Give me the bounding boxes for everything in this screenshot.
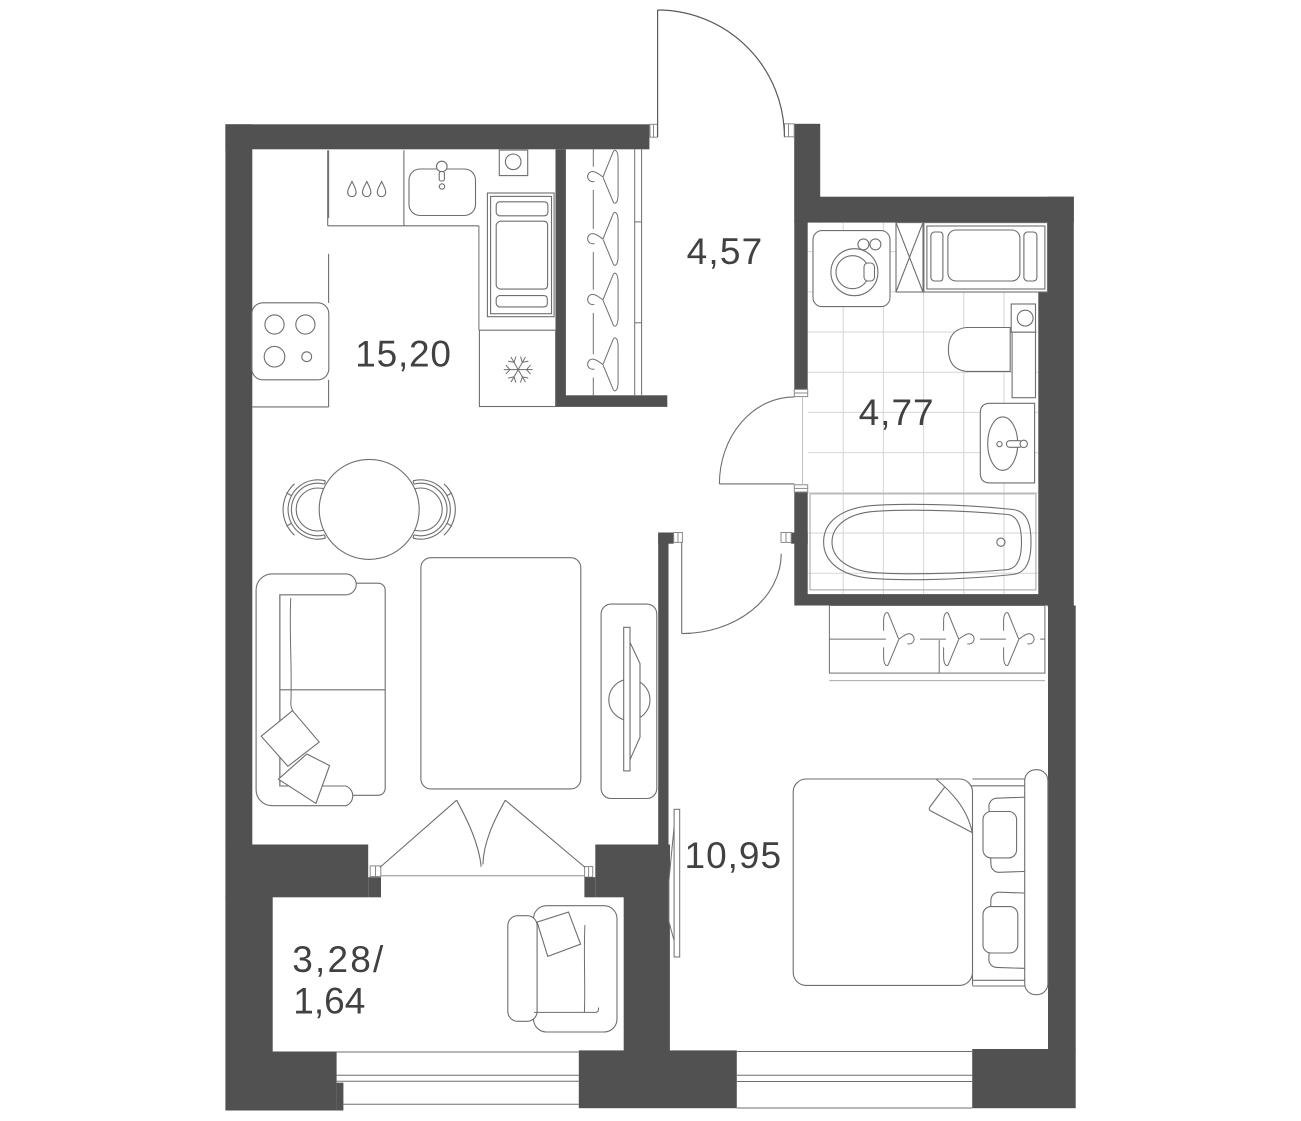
svg-text:4,77: 4,77 <box>859 392 935 433</box>
svg-text:4,57: 4,57 <box>687 231 764 272</box>
svg-text:1,64: 1,64 <box>293 981 365 1022</box>
svg-text:3,28/: 3,28/ <box>292 939 385 980</box>
svg-text:10,95: 10,95 <box>685 835 783 876</box>
svg-text:15,20: 15,20 <box>355 333 452 374</box>
